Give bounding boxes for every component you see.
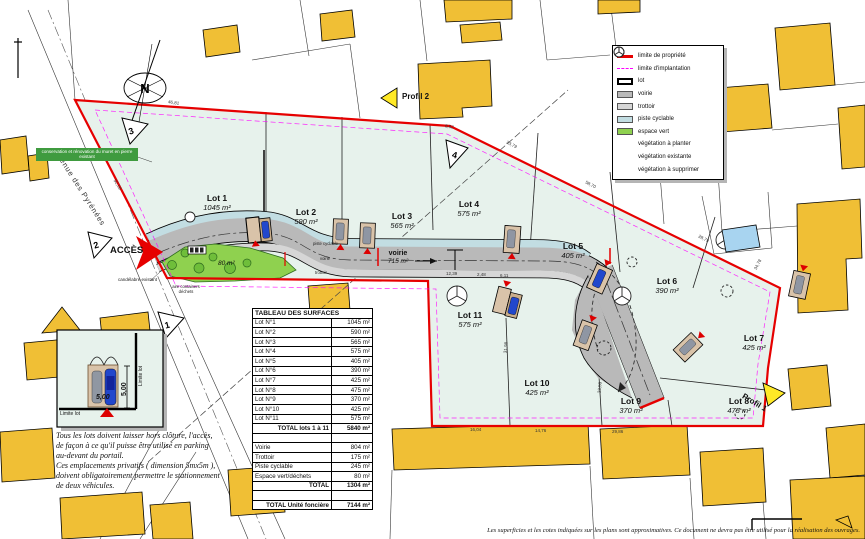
table-total-infra-row: TOTAL1304 m² xyxy=(253,481,373,491)
legend-item-voirie: voirie xyxy=(617,88,719,101)
lot-label: Lot 7425 m² xyxy=(742,334,765,352)
table-total-unit-row: TOTAL Unité foncière7144 m² xyxy=(253,500,373,510)
table-blank-row xyxy=(253,491,373,501)
legend-item-trottoir: trottoir xyxy=(617,100,719,113)
magenta-dash-swatch-icon xyxy=(617,68,633,69)
table-row: Lot N°5405 m² xyxy=(253,356,373,366)
lot-label: Lot 2590 m² xyxy=(294,208,317,226)
table-row: Lot N°6390 m² xyxy=(253,366,373,376)
table-row: Trottoir175 m² xyxy=(253,452,373,462)
compass-north-label: N xyxy=(140,81,149,96)
piste-swatch-icon xyxy=(617,116,633,123)
lot-label: Lot 8475 m² xyxy=(727,397,750,415)
prescription-notes: Tous les lots doivent laisser hors clôtu… xyxy=(56,431,242,490)
table-row: Lot N°8475 m² xyxy=(253,385,373,395)
lot-label: Lot 5405 m² xyxy=(561,242,584,260)
legend-item-vegetation-existante: végétation existante xyxy=(617,151,719,164)
waste-containers-icon xyxy=(188,246,206,254)
table-row: Lot N°10425 m² xyxy=(253,404,373,414)
table-total-lots-row: TOTAL lots 1 à 115840 m² xyxy=(253,424,373,434)
lot-label: Lot 4575 m² xyxy=(457,200,480,218)
pool xyxy=(722,225,760,252)
table-row: Lot N°2590 m² xyxy=(253,328,373,338)
dimension-label: 14,76 xyxy=(535,428,546,433)
table-blank-row xyxy=(253,433,373,443)
lot-label: Lot 9370 m² xyxy=(619,397,642,415)
lot-label: Lot 10425 m² xyxy=(524,379,549,397)
conservation-note: conservation et rénovation du muret en p… xyxy=(36,148,138,161)
legend-item-limite-implantation: limite d'implantation xyxy=(617,63,719,76)
legend-item-piste-cyclable: piste cyclable xyxy=(617,113,719,126)
site-plan-page: N 3 4 2 1 Avenue des Pyrénées ACCÈS P xyxy=(0,0,865,539)
lot-label: Lot 6390 m² xyxy=(655,277,678,295)
inset-width-dim-label: 5,00 xyxy=(96,394,110,401)
inset-limite-lot-bottom-label: Limite lot xyxy=(60,411,80,417)
tableau-des-surfaces: TABLEAU DES SURFACES Lot N°11045 m² Lot … xyxy=(252,308,373,510)
dimension-label: 6,11 xyxy=(500,273,508,278)
dimension-label: 12,39 xyxy=(446,271,457,276)
espace-vert-swatch-icon xyxy=(617,128,633,135)
legend-item-limite-propriete: limite de propriété xyxy=(617,50,719,63)
trottoir-swatch-icon xyxy=(617,103,633,110)
dimension-label: 16,04 xyxy=(470,427,481,432)
lot-label: Lot 11045 m² xyxy=(203,194,231,212)
piste-band-label: piste cyclable xyxy=(313,241,338,246)
table-row: Voirie804 m² xyxy=(253,443,373,453)
legend-item-lot: lot xyxy=(617,75,719,88)
table-row: Lot N°11575 m² xyxy=(253,414,373,424)
table-row: Lot N°11045 m² xyxy=(253,318,373,328)
candelabre-note: candélabre existant xyxy=(118,277,157,282)
disclaimer-note: Les superficies et les cotes indiquées s… xyxy=(360,527,860,534)
lot-label: Lot 11575 m² xyxy=(458,311,483,329)
legend: limite de propriété limite d'implantatio… xyxy=(612,45,724,180)
table-row: Lot N°9370 m² xyxy=(253,395,373,405)
legend-item-vegetation-supprimer: végétation à supprimer xyxy=(617,163,719,176)
dimension-label: 29,86 xyxy=(612,429,623,434)
inset-limite-lot-vertical-label: Limite lot xyxy=(138,366,144,386)
legend-item-vegetation-planter: végétation à planter xyxy=(617,138,719,151)
access-label: ACCÈS xyxy=(110,245,143,256)
table-row: Lot N°7425 m² xyxy=(253,376,373,386)
table-row: Piste cyclable245 m² xyxy=(253,462,373,472)
containers-note: aire containers déchets xyxy=(170,285,202,295)
lot-swatch-icon xyxy=(617,78,633,85)
voirie-swatch-icon xyxy=(617,91,633,98)
road-label: voirie 715 m² xyxy=(388,250,408,266)
trottoir-band-label: trottoir xyxy=(315,270,327,275)
voirie-band-label: voirie xyxy=(320,256,330,261)
table-row: Lot N°4575 m² xyxy=(253,347,373,357)
dimension-label: 2,48 xyxy=(477,272,486,277)
dimension-label: 23,50 xyxy=(597,382,603,394)
dimension-label: 31,98 xyxy=(503,342,509,354)
inset-height-dim-label: 5,00 xyxy=(121,382,128,396)
legend-item-espace-vert: espace vert xyxy=(617,126,719,139)
table-title: TABLEAU DES SURFACES xyxy=(253,309,373,319)
table-row: Espace vert/déchets80 m² xyxy=(253,472,373,482)
profil-2-label: Profil 2 xyxy=(402,92,429,101)
lot-label: Lot 3565 m² xyxy=(390,212,413,230)
table-row: Lot N°3565 m² xyxy=(253,337,373,347)
espace-vert-area-label: 80 m² xyxy=(218,260,235,267)
